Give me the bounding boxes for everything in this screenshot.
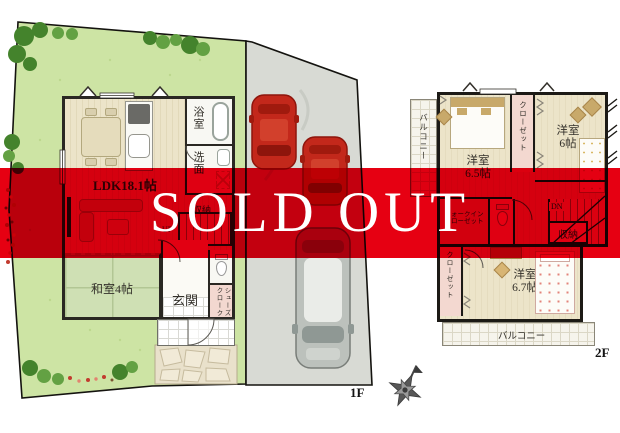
floor1-label: 1F — [350, 385, 364, 401]
floorplan-canvas: 浴室 洗面 LDK18.1帖 収納 UP — [0, 0, 620, 433]
floor2-label: 2F — [595, 345, 609, 361]
sold-out-text: SOLD OUT — [0, 173, 620, 253]
compass-icon — [382, 358, 431, 412]
window-hatch-marks — [608, 99, 617, 164]
